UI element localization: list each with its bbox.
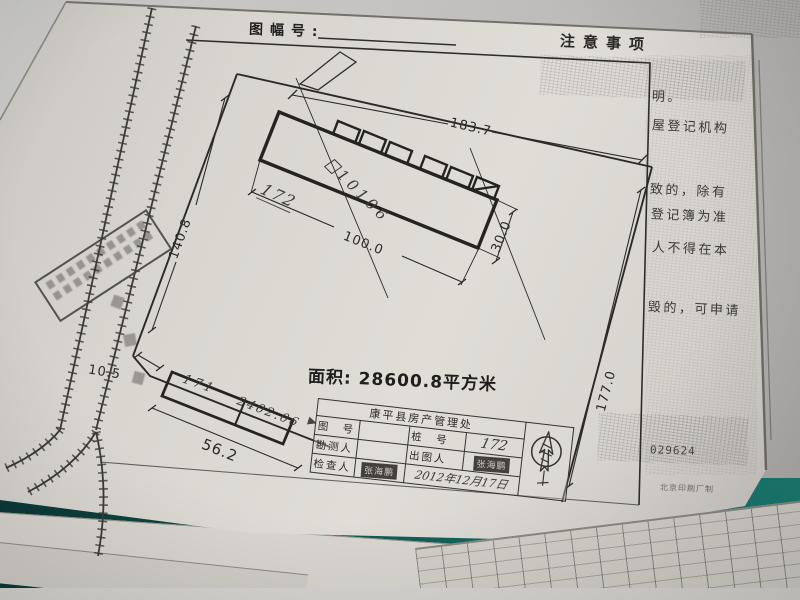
note-line: 毁的，可申请: [648, 296, 742, 319]
note-line: 登记簿为准: [651, 203, 729, 225]
agency-emblem-icon: [523, 426, 568, 494]
drafter-name-stamp: 张海鹏: [473, 455, 510, 473]
note-line: 明。: [652, 85, 684, 105]
checker-name-stamp: 张海鹏: [361, 462, 398, 480]
dim-top: 183.7: [449, 116, 494, 140]
dim-jog: 10.5: [87, 363, 122, 383]
checker-label: 检查人: [310, 453, 356, 477]
printer-mark: 北京印刷厂制: [660, 482, 714, 495]
road-label-smudge: [123, 333, 137, 347]
dim-building-length: 100.0: [341, 229, 386, 259]
pile-no-value: 172: [479, 436, 510, 455]
note-line: 屋登记机构: [652, 114, 730, 136]
notes-title: 注意事项: [560, 30, 653, 55]
serial-number: 029624: [650, 443, 696, 458]
dim-building-depth: 30.0: [489, 219, 515, 255]
note-line: 致的，除有: [650, 178, 728, 200]
dim-left: 140.8: [166, 216, 195, 261]
note-line: 人不得在本: [652, 236, 730, 258]
dim-front: 56.2: [199, 435, 240, 466]
sheet-number-label: 图幅号:: [249, 19, 325, 42]
agency-emblem-cell: [518, 422, 574, 501]
dim-right: 177.0: [594, 369, 619, 414]
photo-of-survey-document: 183.7 140.8 100.0 30.0 56.2 177.0 10.5 图…: [0, 0, 800, 600]
bottom-paper-strip: [0, 588, 800, 600]
